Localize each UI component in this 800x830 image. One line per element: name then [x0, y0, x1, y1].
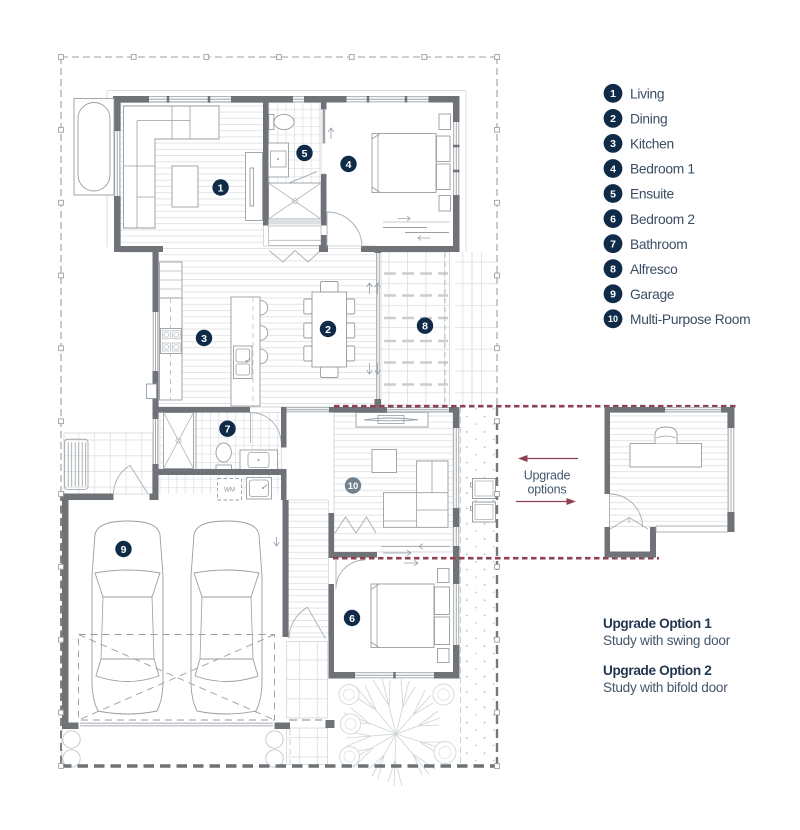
- svg-text:5: 5: [610, 188, 616, 200]
- svg-text:2: 2: [610, 113, 616, 125]
- svg-text:9: 9: [610, 289, 616, 301]
- svg-text:6: 6: [610, 213, 616, 225]
- svg-text:Study with bifold door: Study with bifold door: [603, 680, 728, 695]
- svg-text:4: 4: [610, 163, 616, 175]
- svg-text:Dining: Dining: [630, 112, 667, 127]
- svg-text:Bathroom: Bathroom: [630, 237, 687, 252]
- svg-text:6: 6: [349, 613, 355, 625]
- svg-text:WM: WM: [224, 488, 235, 494]
- svg-text:1: 1: [610, 88, 616, 100]
- svg-text:Bedroom 2: Bedroom 2: [630, 212, 695, 227]
- svg-text:9: 9: [121, 544, 127, 556]
- svg-text:Alfresco: Alfresco: [630, 262, 678, 277]
- svg-text:8: 8: [422, 320, 428, 332]
- svg-text:7: 7: [225, 423, 231, 435]
- svg-text:4: 4: [346, 159, 352, 171]
- svg-text:Multi-Purpose Room: Multi-Purpose Room: [630, 312, 750, 327]
- svg-text:Kitchen: Kitchen: [630, 137, 674, 152]
- svg-text:options: options: [528, 483, 567, 497]
- svg-text:5: 5: [302, 148, 308, 160]
- svg-text:10: 10: [608, 314, 618, 324]
- svg-text:Study with swing door: Study with swing door: [603, 633, 731, 648]
- svg-text:Upgrade: Upgrade: [524, 469, 571, 483]
- svg-text:3: 3: [610, 138, 616, 150]
- svg-text:3: 3: [201, 333, 207, 345]
- svg-text:Upgrade Option 1: Upgrade Option 1: [603, 616, 712, 631]
- svg-text:1: 1: [218, 182, 224, 194]
- svg-text:7: 7: [610, 238, 616, 250]
- svg-text:Garage: Garage: [630, 287, 675, 302]
- svg-text:Ensuite: Ensuite: [630, 187, 675, 202]
- svg-text:Upgrade Option 2: Upgrade Option 2: [603, 663, 712, 678]
- svg-text:Living: Living: [630, 87, 664, 102]
- svg-text:10: 10: [348, 481, 359, 492]
- svg-text:2: 2: [325, 324, 331, 336]
- svg-text:8: 8: [610, 264, 616, 276]
- svg-text:Bedroom 1: Bedroom 1: [630, 162, 695, 177]
